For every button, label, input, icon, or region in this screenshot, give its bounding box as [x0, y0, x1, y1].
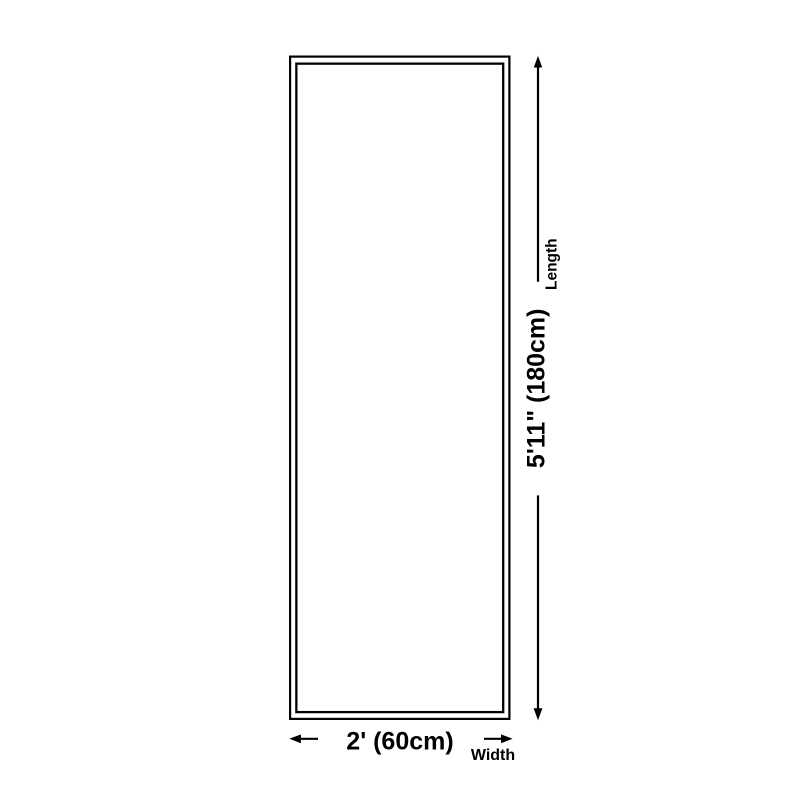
svg-text:Width: Width — [471, 747, 515, 764]
svg-text:2' (60cm): 2' (60cm) — [346, 728, 453, 756]
svg-text:5'11" (180cm): 5'11" (180cm) — [523, 309, 551, 469]
svg-text:Length: Length — [543, 238, 560, 290]
